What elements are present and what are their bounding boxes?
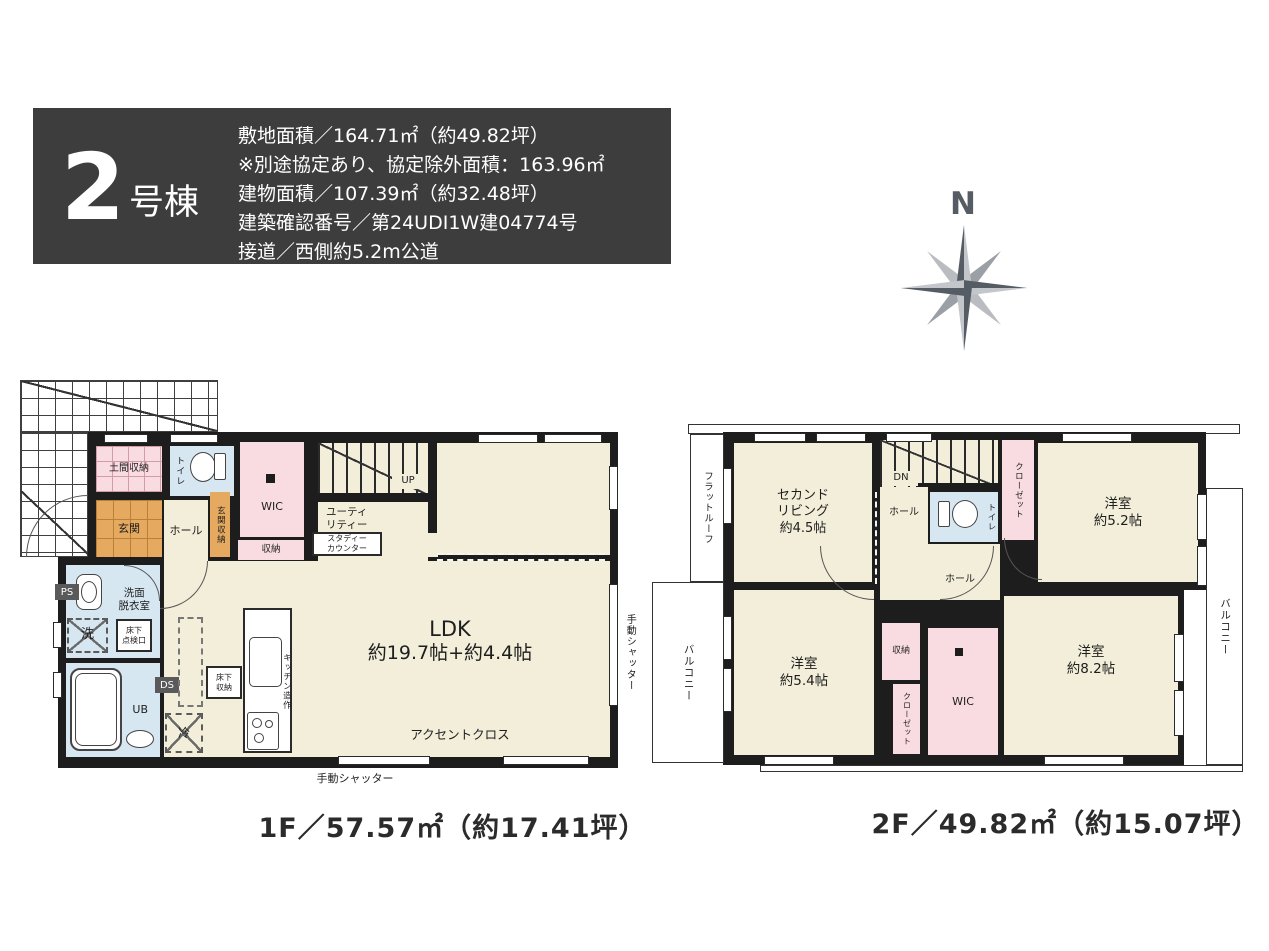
stairs-up-label: UP [392,474,424,489]
unit-number-suffix: 号棟 [129,174,199,225]
window [104,434,148,443]
window [1174,634,1184,682]
floor1-caption: 1F／57.57㎡（約17.41坪） [245,806,660,845]
balcony-right-label: バルコニー [1218,598,1231,656]
room-label: WIC [952,695,974,709]
open-boundary-dash [437,553,605,555]
window [754,433,806,442]
window [53,672,62,698]
window [723,616,732,660]
toilet-icon [952,500,978,528]
window [170,434,218,443]
stairs-wall [916,483,998,490]
agreement-line: ※別途協定あり、協定除外面積：163.96㎡ [238,151,663,180]
kitchen-sink-icon [249,637,282,687]
compass-rose-icon [898,222,1030,354]
burner-icon [265,720,273,728]
property-info-panel: 2 号棟 敷地面積／164.71㎡（約49.82坪） ※別途協定あり、協定除外面… [33,108,671,264]
toilet-icon [190,452,216,482]
tile-diagonal [21,381,217,431]
room-label: セカンド リビング 約4.5帖 [777,488,829,537]
floorplan-page: 2 号棟 敷地面積／164.71㎡（約49.82坪） ※別途協定あり、協定除外面… [0,0,1269,951]
unit-number-digit: 2 [61,148,125,229]
flat-roof-label: フラットルーフ [701,471,713,545]
stove-icon [247,712,279,750]
room-genkan: 玄関 [96,500,162,557]
room-wic-2f: WIC [928,628,998,755]
room-label: 収納 [261,544,280,556]
ds-label: DS [160,680,174,691]
room-label: WIC [261,500,283,514]
balcony-right: バルコニー [1206,488,1243,765]
window [478,434,538,443]
window [503,756,589,765]
room-label: トイレ [173,456,184,486]
room-82: 洋室 約8.2帖 [1004,596,1178,755]
study-counter: スタディー カウンター [312,532,382,556]
hall-upper-label: ホール [878,505,930,521]
window [1174,690,1184,736]
window [544,434,602,443]
window [1197,494,1207,540]
room-genkan-shuno: 玄関収納 [210,492,230,557]
compass-north-label: N [942,186,984,222]
window [609,466,618,510]
washer-space: 洗 [67,618,108,653]
room-label: クローゼット [1013,462,1024,519]
approach-tiles-top [20,380,218,432]
underfloor-storage-label: 床下 収納 [216,673,232,693]
study-counter-label: スタディー カウンター [327,534,367,554]
room-label: 収納 [892,646,910,657]
ps-tag: PS [55,584,79,600]
bath-counter-icon [126,730,154,748]
ldk-size-label: 約19.7帖+約4.4帖 [368,642,532,666]
stairs-dn-label: DN [884,471,918,486]
underfloor-storage: 床下 収納 [206,666,242,699]
room-wic-1f: WIC [240,442,304,537]
room-dining-44 [437,443,610,555]
window [53,622,62,648]
balcony-left-label: バルコニー [681,644,694,702]
flat-roof: フラットルーフ [690,434,724,582]
room-label: ユーティ リティー [326,506,367,532]
wic-pole-mark [955,648,963,656]
room-label: 玄関収納 [215,506,226,544]
window [816,433,866,442]
open-boundary-dash [875,492,877,584]
shutter-bottom-label: 手動シャッター [302,771,408,787]
washbasin-bowl-icon [81,581,97,603]
balcony-left: バルコニー [652,582,724,763]
room-label: UB [132,703,148,717]
ps-label: PS [61,587,73,598]
pantry-space [178,617,203,707]
eaves-outline [760,765,1243,772]
room-doma-shuno: 土間収納 [96,446,162,492]
ldk-label-group: LDK 約19.7帖+約4.4帖 [330,610,570,672]
window [723,468,732,524]
confirmation-number-line: 建築確認番号／第24UDI1W建04774号 [238,209,663,238]
site-area-line: 敷地面積／164.71㎡（約49.82坪） [238,122,663,151]
bathtub-inner-icon [75,673,117,746]
stairs-wall [318,493,428,500]
property-info-lines: 敷地面積／164.71㎡（約49.82坪） ※別途協定あり、協定除外面積：163… [238,122,663,267]
accent-cross-label: アクセントクロス [385,726,535,744]
room-hall-1f: ホール [164,500,208,561]
toilet-tank-icon [214,453,226,480]
floor2-caption: 2F／49.82㎡（約15.07坪） [858,802,1269,841]
room-label: クローゼット [902,692,912,746]
room-54: 洋室 約5.4帖 [734,590,874,755]
window [764,756,834,765]
underfloor-hatch-label: 床下 点検口 [122,626,146,646]
closet-upper-2f: クローゼット [1002,440,1034,540]
burner-icon [254,733,264,743]
room-label: 玄関 [118,522,140,536]
window [1044,756,1124,765]
unit-number: 2 号棟 [61,148,199,229]
kitchen-label: キッチン造作 [279,648,293,714]
building-area-line: 建物面積／107.39㎡（約32.48坪） [238,180,663,209]
underfloor-hatch: 床下 点検口 [116,619,152,652]
ds-tag: DS [155,677,179,693]
fridge-space: 冷 [165,713,203,753]
window [1197,546,1207,586]
window [609,584,618,706]
window [1062,433,1132,442]
window [886,433,932,442]
window [338,756,430,765]
burner-icon [252,718,262,728]
toilet-tank-icon [938,501,950,527]
shuno-2f: 収納 [882,623,920,680]
room-label: トイレ [985,503,996,532]
closet-lower-2f: クローゼット [893,684,920,754]
room-label: 土間収納 [109,463,149,476]
road-line: 接道／西側約5.2m公道 [238,238,663,267]
room-label: ホール [170,524,203,538]
washer-label: 洗 [81,627,94,643]
shutter-right-label: 手動シャッター [621,596,637,708]
ldk-label: LDK [429,616,471,642]
fridge-label: 冷 [178,726,190,741]
window [723,668,732,712]
room-label: 洋室 約8.2帖 [1067,644,1115,678]
room-label: 洋室 約5.4帖 [780,656,828,690]
room-shuno-1f: 収納 [238,540,304,560]
room-52: 洋室 約5.2帖 [1038,443,1198,582]
wic-pole-mark [266,474,275,483]
room-label: 洋室 約5.2帖 [1094,496,1142,530]
